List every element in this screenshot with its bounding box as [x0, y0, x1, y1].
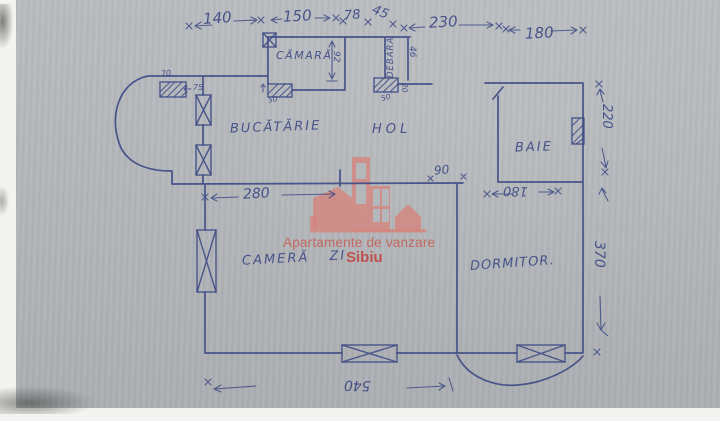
window-symbol-kitchen-lower: [196, 145, 211, 175]
dim-label-280: 280: [243, 186, 270, 201]
dim-label-150: 150: [283, 8, 312, 24]
dim-label-230: 230: [429, 14, 458, 30]
window-symbol-kitchen-upper: [196, 95, 211, 125]
scan-margin-bottom: [0, 408, 720, 421]
scan-margin-left: [0, 0, 16, 421]
window-symbol-camara-corner: [263, 33, 276, 47]
dim-label-50-debara: 50: [380, 93, 391, 103]
door-hatch-balcony-window: [160, 82, 186, 97]
window-symbol-camera-zi-bottom: [342, 345, 397, 362]
dim-label-78: 78: [343, 8, 361, 22]
dim-label-370: 370: [592, 241, 606, 268]
window-symbol-camera-zi-left: [197, 230, 216, 292]
room-label-hol: HOL: [372, 123, 411, 136]
dim-label-540: 540: [344, 378, 371, 392]
room-label-camara: CĂMARĂ: [276, 50, 332, 61]
dimension-arrows: [184, 15, 608, 392]
dim-label-220: 220: [600, 104, 613, 129]
room-label-baie: BAIE: [515, 140, 553, 154]
dim-label-90: 90: [434, 163, 450, 176]
scanned-floor-plan: Apartamente de vanzare Sibiu: [0, 0, 720, 421]
room-label-debara: DEBARA: [387, 37, 396, 78]
door-hatch-debara: [374, 78, 398, 92]
dim-label-70: 70: [161, 69, 172, 78]
dim-label-92: 92: [331, 51, 340, 62]
dim-label-20: 20: [401, 83, 409, 93]
dim-label-180-baie: 180: [503, 184, 528, 197]
dim-label-75: 75: [193, 84, 203, 92]
window-symbol-dormitor-bottom: [517, 345, 565, 362]
dim-label-140: 140: [203, 10, 233, 27]
dim-label-46: 46: [407, 46, 416, 57]
room-label-bucatarie: BUCĂTĂRIE: [230, 119, 322, 135]
dim-label-50-camara: 50: [268, 95, 278, 104]
floor-plan-drawing: [0, 0, 720, 421]
dim-label-180-top: 180: [525, 25, 554, 41]
